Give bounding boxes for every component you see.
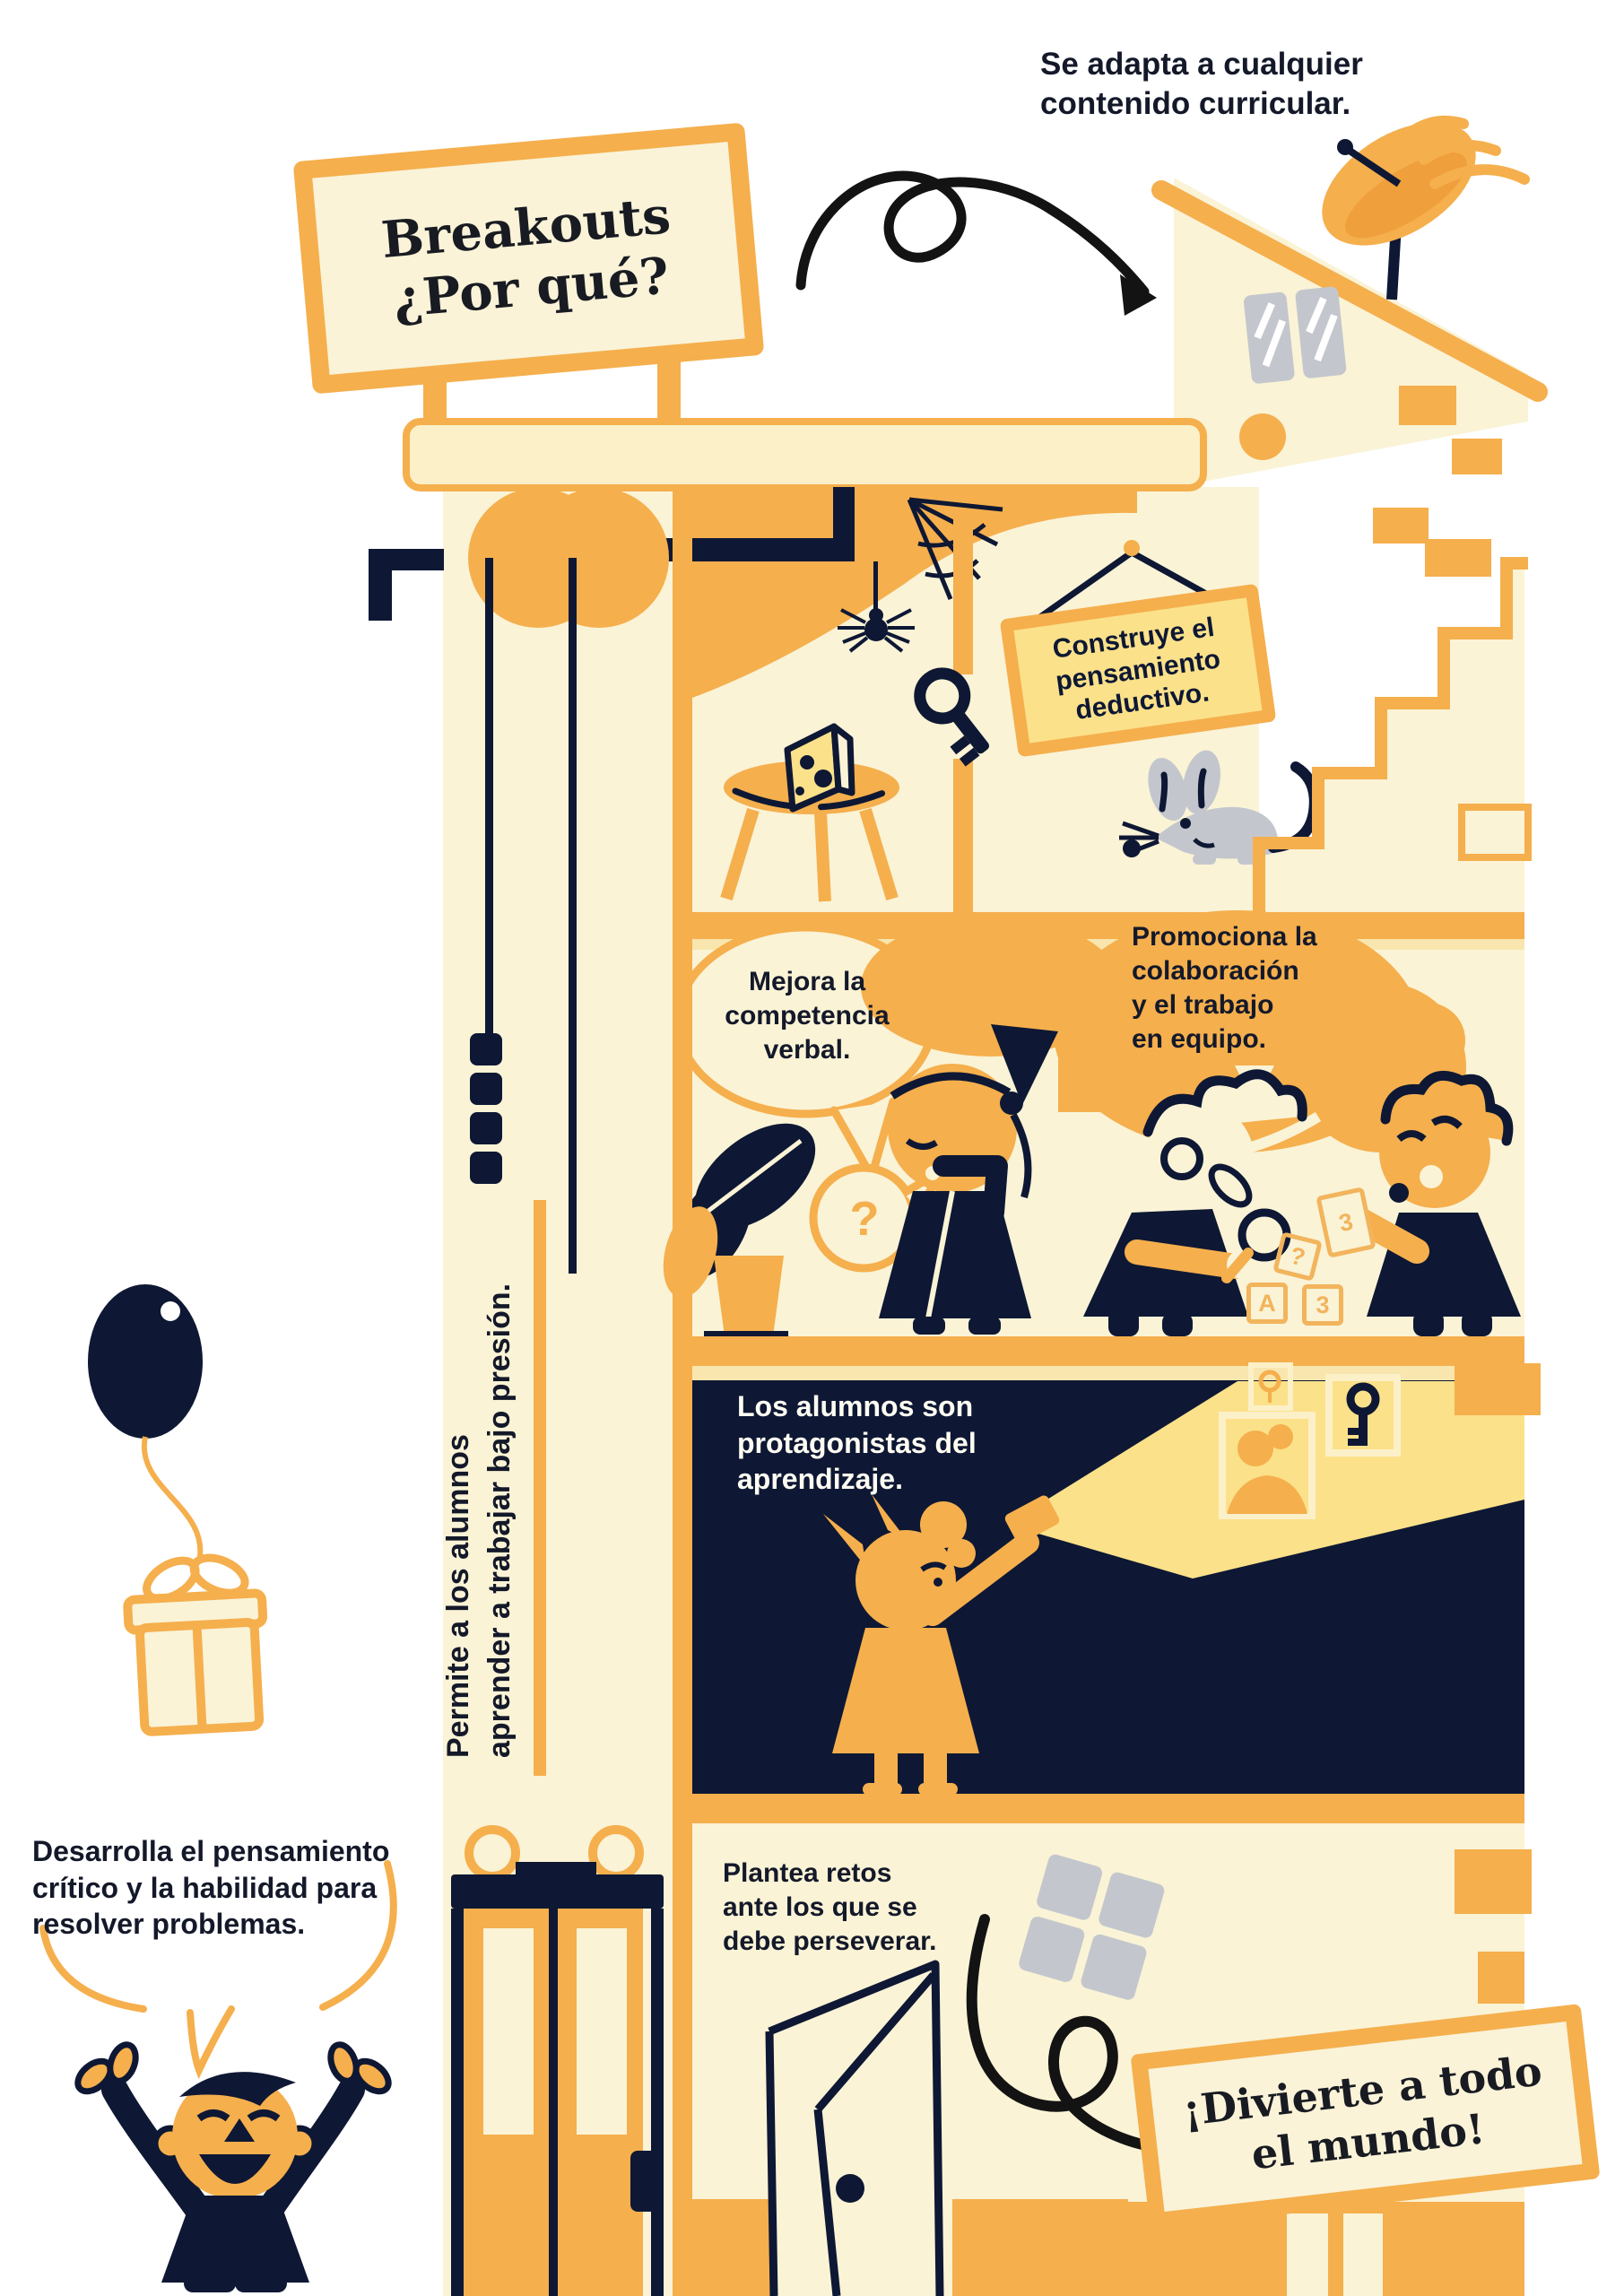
toy-block-3: 3 [1302, 1284, 1343, 1326]
note-permite: Permite a los alumnos aprender a trabaja… [438, 1213, 531, 1758]
gift-icon [125, 1548, 268, 1733]
toy-block-a: A [1246, 1283, 1288, 1324]
note-promociona: Promociona la colaboración y el trabajo … [1132, 920, 1317, 1057]
cheering-kid [73, 2041, 395, 2292]
main-sign: Breakouts ¿Por qué? [293, 122, 765, 394]
note-alumnos: Los alumnos son protagonistas del aprend… [737, 1388, 977, 1498]
note-plantea: Plantea retos ante los que se debe perse… [723, 1857, 937, 1959]
floor-divider [692, 1794, 1524, 1823]
elevator-car [451, 1830, 664, 2296]
note-mejora: Mejora la competencia verbal. [710, 965, 904, 1067]
heart-arrow-doodle [801, 176, 1157, 316]
floor-divider [692, 1336, 1524, 1366]
note-adapta: Se adapta a cualquier contenido curricul… [1040, 45, 1363, 125]
infographic-page: Se adapta a cualquier contenido curricul… [0, 0, 1624, 2296]
balloon-icon [88, 1284, 203, 1562]
question-mark: ? [831, 1189, 898, 1248]
note-desarrolla: Desarrolla el pensamiento crítico y la h… [32, 1833, 389, 1943]
